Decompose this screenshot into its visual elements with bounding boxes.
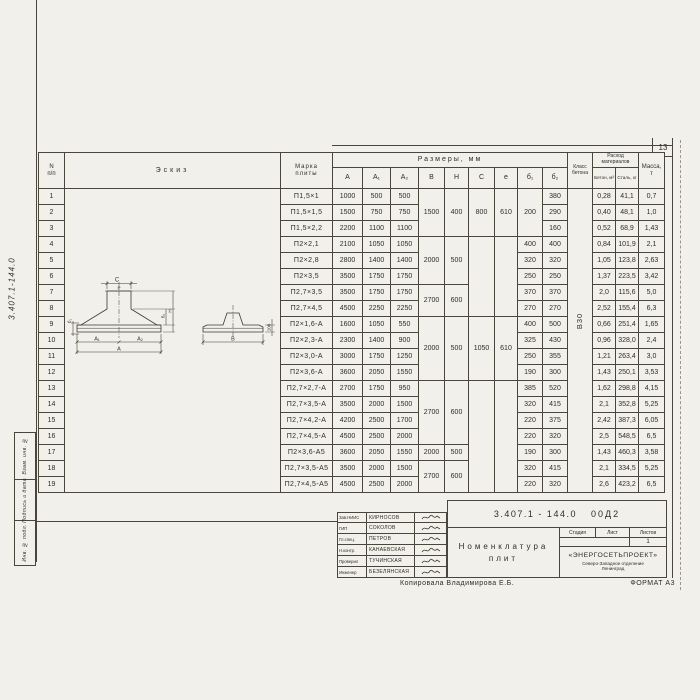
table-cell: 3,0 (639, 349, 665, 365)
mass-header-line2: т (639, 171, 664, 178)
signature-row: Зав.НИИСКИРНОСОВ (337, 512, 447, 523)
table-cell: 298,8 (616, 381, 639, 397)
table-cell: 250 (518, 269, 543, 285)
table-cell: 1400 (363, 253, 391, 269)
col-header-A1: А₁ (363, 168, 391, 189)
table-cell: 190 (518, 445, 543, 461)
table-cell: П2,7×3,5 (281, 285, 333, 301)
table-cell: 1,43 (593, 365, 616, 381)
mark-header-line2: плиты (281, 171, 332, 178)
sketch-cell: С е б₁ б₂ Н А₁ А₂ А В 100 (65, 189, 281, 493)
table-cell: 1400 (363, 333, 391, 349)
concrete-class-value: В30 (576, 313, 584, 329)
dim-label-B: В (231, 337, 235, 343)
table-cell: 4 (39, 237, 65, 253)
table-cell: 1500 (333, 205, 363, 221)
table-cell: 1050 (469, 317, 495, 381)
col-header-A2: А₂ (391, 168, 419, 189)
table-cell: 290 (543, 205, 568, 221)
table-cell: 250 (543, 269, 568, 285)
drawing-title-line2: плит (489, 553, 518, 565)
table-cell: 2,1 (639, 237, 665, 253)
format-note: ФОРМАТ А3 (630, 580, 675, 587)
table-cell: 2000 (391, 429, 419, 445)
table-cell: 2050 (363, 445, 391, 461)
table-cell: 520 (543, 381, 568, 397)
table-cell: 1,43 (639, 221, 665, 237)
table-cell: 19 (39, 477, 65, 493)
dim-label-b2: б₂ (161, 314, 166, 319)
table-cell: 334,5 (616, 461, 639, 477)
table-cell (469, 237, 495, 317)
table-cell: 500 (543, 317, 568, 333)
table-cell: П2×3,5 (281, 269, 333, 285)
table-cell: 1,37 (593, 269, 616, 285)
table-cell: 2500 (363, 477, 391, 493)
table-cell: 2,52 (593, 301, 616, 317)
table-cell: 3000 (333, 349, 363, 365)
table-cell: П1,5×2,2 (281, 221, 333, 237)
table-cell: П2,7×4,5 (281, 301, 333, 317)
table-cell: П2,7×3,5-А5 (281, 461, 333, 477)
table-cell: 2,0 (593, 285, 616, 301)
table-cell: 220 (518, 413, 543, 429)
mass-header-line1: Масса, (639, 164, 664, 171)
table-cell: 1050 (363, 237, 391, 253)
copied-by: Копировала Владимирова Е.Б. (400, 580, 514, 587)
doc-number-cell: 3.407.1 - 144.0 00Д2 (447, 500, 667, 528)
table-cell: 320 (518, 461, 543, 477)
frame-bottom-left-line (36, 521, 338, 522)
stamp-vzam-inv: Взам. инв. № (14, 432, 36, 479)
table-cell: 500 (363, 189, 391, 205)
table-cell: 1000 (333, 189, 363, 205)
signer-role: Проверил (337, 556, 367, 567)
vertical-doc-code: 3.407.1-144.0 (8, 233, 17, 345)
table-cell: 68,9 (616, 221, 639, 237)
table-cell: 2,63 (639, 253, 665, 269)
table-cell: П2×3,0-А (281, 349, 333, 365)
table-cell: 400 (543, 237, 568, 253)
table-cell: П1,5×1,5 (281, 205, 333, 221)
table-cell: 1750 (363, 269, 391, 285)
table-cell: 423,2 (616, 477, 639, 493)
class-header-line2: бетона (568, 171, 592, 177)
table-cell: 0,84 (593, 237, 616, 253)
table-cell: 1,05 (593, 253, 616, 269)
table-cell: 2250 (363, 301, 391, 317)
dim-label-C: С (115, 278, 120, 284)
table-cell: 328,0 (616, 333, 639, 349)
table-cell: 320 (518, 397, 543, 413)
table-cell: 2100 (333, 237, 363, 253)
table-cell: 1100 (391, 221, 419, 237)
signer-name: КАНАЕВСКАЯ (367, 545, 415, 556)
table-cell: 3500 (333, 285, 363, 301)
table-cell: 2700 (333, 381, 363, 397)
table-cell: 10 (39, 333, 65, 349)
table-cell: 4500 (333, 429, 363, 445)
scanned-drawing-sheet: { "page": { "number": "13", "doc_code_ve… (0, 0, 700, 700)
col-header-b2: б₂ (543, 168, 568, 189)
table-cell: 548,5 (616, 429, 639, 445)
signer-role: Гл.спец. (337, 534, 367, 545)
table-cell: 1750 (363, 381, 391, 397)
table-cell: 11 (39, 349, 65, 365)
table-cell: 500 (445, 317, 469, 381)
table-cell: П1,5×1 (281, 189, 333, 205)
table-cell: 600 (445, 381, 469, 445)
table-cell: 13 (39, 381, 65, 397)
table-cell: 1250 (391, 349, 419, 365)
table-cell: 2500 (363, 429, 391, 445)
table-cell: 155,4 (616, 301, 639, 317)
table-cell: 2500 (363, 413, 391, 429)
dim-label-A: А (117, 347, 121, 353)
col-header-B: В (419, 168, 445, 189)
table-cell: 375 (543, 413, 568, 429)
table-cell: 3,53 (639, 365, 665, 381)
table-cell: 800 (469, 189, 495, 237)
signature-row: ГИПСОКОЛОВ (337, 523, 447, 534)
table-cell: 500 (445, 237, 469, 285)
signature-mark (415, 512, 447, 523)
page-number: 13 (659, 143, 668, 152)
table-cell: 0,7 (639, 189, 665, 205)
table-cell: 4500 (333, 477, 363, 493)
table-cell: 251,4 (616, 317, 639, 333)
col-header-C: С (469, 168, 495, 189)
table-cell: 14 (39, 397, 65, 413)
table-cell: 3 (39, 221, 65, 237)
table-cell: 1750 (391, 269, 419, 285)
table-cell: П2×2,1 (281, 237, 333, 253)
table-cell: 9 (39, 317, 65, 333)
table-cell: 300 (543, 445, 568, 461)
consumption-header-line2: материалов (593, 160, 638, 166)
page-edge-shadow (680, 140, 681, 590)
table-cell: 3,42 (639, 269, 665, 285)
table-cell: 1100 (363, 221, 391, 237)
col-header-steel: Сталь, кг (616, 168, 639, 189)
table-cell (495, 237, 518, 317)
signature-row: Гл.спец.ПЕТРОВ (337, 534, 447, 545)
table-cell: 750 (391, 205, 419, 221)
table-cell: 1,62 (593, 381, 616, 397)
table-cell: П2×3,6-А (281, 365, 333, 381)
table-cell: 610 (495, 317, 518, 381)
num-header-top: N (39, 164, 64, 171)
dim-label-A1: А₁ (94, 337, 100, 343)
nomenclature-table: N п/п Эскиз Марка плиты Размеры, мм Клас… (38, 152, 665, 493)
table-cell: П2,7×4,5-А (281, 429, 333, 445)
table-cell: 1500 (419, 189, 445, 237)
title-block: 3.407.1 - 144.0 00Д2 Номенклатура плит С… (337, 500, 667, 578)
stamp-inv-podl: Инв. № подл. (14, 520, 36, 566)
organization-name: «ЭНЕРГОСЕТЬПРОЕКТ» (569, 552, 658, 560)
col-header-A: А (333, 168, 363, 189)
table-cell: 320 (543, 477, 568, 493)
table-cell: 2800 (333, 253, 363, 269)
table-cell: 12 (39, 365, 65, 381)
table-cell: 2000 (363, 461, 391, 477)
signature-grid: Зав.НИИСКИРНОСОВГИПСОКОЛОВГл.спец.ПЕТРОВ… (337, 512, 447, 578)
table-cell: 385 (518, 381, 543, 397)
table-cell: 600 (445, 461, 469, 493)
signer-name: КИРНОСОВ (367, 512, 415, 523)
dimension-lines-left (71, 281, 175, 354)
table-cell (469, 381, 495, 493)
col-header-e: е (495, 168, 518, 189)
table-cell: 123,8 (616, 253, 639, 269)
table-cell: 2700 (419, 285, 445, 317)
table-cell: 3500 (333, 397, 363, 413)
table-cell: 2700 (419, 381, 445, 445)
table-cell: 355 (543, 349, 568, 365)
table-cell: 101,9 (616, 237, 639, 253)
table-cell: П2×3,6-А5 (281, 445, 333, 461)
table-cell: 1400 (391, 253, 419, 269)
table-cell: 500 (391, 189, 419, 205)
sketch-area: С е б₁ б₂ Н А₁ А₂ А В 100 (67, 275, 281, 361)
table-cell: П2×2,3-А (281, 333, 333, 349)
table-cell: 320 (543, 253, 568, 269)
table-cell: 6 (39, 269, 65, 285)
col-header-mark: Марка плиты (281, 153, 333, 189)
dim-label-100: 100 (267, 323, 272, 331)
table-cell: 4500 (333, 301, 363, 317)
signer-name: БЕЗЕЛЯНСКАЯ (367, 567, 415, 578)
table-cell: 160 (543, 221, 568, 237)
doc-number: 3.407.1 - 144.0 (494, 509, 577, 519)
table-cell: 415 (543, 397, 568, 413)
table-cell: 400 (445, 189, 469, 237)
table-cell: 415 (543, 461, 568, 477)
table-cell: 320 (518, 253, 543, 269)
table-cell: 2000 (363, 397, 391, 413)
stamp-podpis-data: Подпись и дата (14, 479, 36, 520)
table-cell: 380 (543, 189, 568, 205)
table-cell: 17 (39, 445, 65, 461)
table-cell: 2200 (333, 221, 363, 237)
table-cell: 41,1 (616, 189, 639, 205)
table-cell: 1 (39, 189, 65, 205)
table-cell: 1750 (363, 349, 391, 365)
table-body: 1 (39, 189, 665, 493)
table-cell: 250,1 (616, 365, 639, 381)
table-cell: 300 (543, 365, 568, 381)
stamp-label: Инв. № подл. (22, 524, 28, 562)
table-cell: 430 (543, 333, 568, 349)
table-cell: 1550 (391, 445, 419, 461)
frame-top-border (332, 145, 672, 146)
table-cell: 2000 (419, 317, 445, 381)
signer-name: ТУЧИНСКАЯ (367, 556, 415, 567)
stamp-label: Подпись и дата (22, 478, 28, 523)
table-cell: 3500 (333, 461, 363, 477)
table-cell: 2000 (419, 237, 445, 285)
table-cell: 550 (391, 317, 419, 333)
table-cell: 600 (445, 285, 469, 317)
table-cell: 0,52 (593, 221, 616, 237)
frame-right-border (672, 138, 673, 578)
table-cell: 6,5 (639, 477, 665, 493)
dim-label-H: Н (168, 309, 173, 312)
signer-role: Н.контр. (337, 545, 367, 556)
table-cell: 2,42 (593, 413, 616, 429)
table-cell: П2,7×3,5-А (281, 397, 333, 413)
signer-role: Инженер (337, 567, 367, 578)
signature-mark (415, 523, 447, 534)
table-cell: 1600 (333, 317, 363, 333)
table-cell: 270 (543, 301, 568, 317)
table-cell: П2,7×4,5-А5 (281, 477, 333, 493)
table-cell: 400 (518, 317, 543, 333)
table-cell: 610 (495, 189, 518, 237)
table-cell: 320 (543, 429, 568, 445)
signature-mark (415, 534, 447, 545)
table-cell: 2,1 (593, 397, 616, 413)
table-cell: 1550 (391, 365, 419, 381)
table-cell: 15 (39, 413, 65, 429)
slab-cross-section-sketch: С е б₁ б₂ Н А₁ А₂ А В 100 (67, 275, 281, 361)
col-header-mass: Масса, т (639, 153, 665, 189)
table-cell: 6,5 (639, 429, 665, 445)
table-cell: 223,5 (616, 269, 639, 285)
organization-city: Ленинград (602, 566, 625, 572)
table-cell: 1,43 (593, 445, 616, 461)
table-cell: П2×2,8 (281, 253, 333, 269)
table-cell: 115,6 (616, 285, 639, 301)
stamp-label: Взам. инв. № (22, 437, 28, 475)
num-header-bottom: п/п (39, 171, 64, 178)
mark-header-line1: Марка (281, 164, 332, 171)
table-cell: 900 (391, 333, 419, 349)
table-cell: П2×1,6-А (281, 317, 333, 333)
table-cell: П2,7×4,2-А (281, 413, 333, 429)
col-header-b1: б₁ (518, 168, 543, 189)
table-cell: 950 (391, 381, 419, 397)
concrete-class-cell: В30 (568, 189, 593, 493)
table-cell: 2000 (391, 477, 419, 493)
table-cell: 1,65 (639, 317, 665, 333)
signature-mark (415, 545, 447, 556)
table-cell: 460,3 (616, 445, 639, 461)
table-cell: 1500 (391, 397, 419, 413)
table-cell: 325 (518, 333, 543, 349)
table-cell: 750 (363, 205, 391, 221)
table-cell: 387,3 (616, 413, 639, 429)
table-cell: 220 (518, 477, 543, 493)
table-cell: 2,4 (639, 333, 665, 349)
table-cell: 2000 (419, 445, 445, 461)
table-cell: 370 (518, 285, 543, 301)
table-cell: 18 (39, 461, 65, 477)
table-cell: 3600 (333, 365, 363, 381)
table-cell: 1750 (391, 285, 419, 301)
table-cell: 1700 (391, 413, 419, 429)
col-header-H: Н (445, 168, 469, 189)
signer-name: ПЕТРОВ (367, 534, 415, 545)
table-cell: 370 (543, 285, 568, 301)
table-row: 1 (39, 189, 665, 205)
table-cell: 2250 (391, 301, 419, 317)
signature-row: ПроверилТУЧИНСКАЯ (337, 556, 447, 567)
table-cell: 5,25 (639, 397, 665, 413)
col-header-consumption: Расход материалов (593, 153, 639, 168)
table-cell: 2050 (363, 365, 391, 381)
table-cell: 0,66 (593, 317, 616, 333)
table-cell: 2300 (333, 333, 363, 349)
table-cell: 0,96 (593, 333, 616, 349)
table-cell: 3600 (333, 445, 363, 461)
table-cell (495, 381, 518, 493)
signer-role: Зав.НИИС (337, 512, 367, 523)
signature-row: ИнженерБЕЗЕЛЯНСКАЯ (337, 567, 447, 578)
table-cell: 200 (518, 189, 543, 237)
col-header-num: N п/п (39, 153, 65, 189)
table-cell: 2,5 (593, 429, 616, 445)
table-cell: 2700 (419, 461, 445, 493)
signature-mark (415, 567, 447, 578)
table-cell: 2 (39, 205, 65, 221)
col-header-dims-group: Размеры, мм (333, 153, 568, 168)
table-cell: 3500 (333, 269, 363, 285)
table-cell: 250 (518, 349, 543, 365)
table-cell: 400 (518, 237, 543, 253)
table-cell: 263,4 (616, 349, 639, 365)
signature-mark (415, 556, 447, 567)
drawing-title-line1: Номенклатура (459, 541, 549, 553)
table-cell: 0,28 (593, 189, 616, 205)
table-cell: 4200 (333, 413, 363, 429)
table-cell: 16 (39, 429, 65, 445)
signer-name: СОКОЛОВ (367, 523, 415, 534)
dim-label-e: е (117, 286, 120, 292)
table-cell: 1050 (363, 317, 391, 333)
table-cell: 6,3 (639, 301, 665, 317)
table-cell: 2,6 (593, 477, 616, 493)
table-cell: 1050 (391, 237, 419, 253)
table-cell: 1,0 (639, 205, 665, 221)
table-cell: 8 (39, 301, 65, 317)
table-cell: 5,0 (639, 285, 665, 301)
frame-left-border (36, 0, 37, 562)
signer-role: ГИП (337, 523, 367, 534)
table-cell: 220 (518, 429, 543, 445)
col-header-concrete: Бетон, м³ (593, 168, 616, 189)
organization-cell: «ЭНЕРГОСЕТЬПРОЕКТ» Северо-Западное отдел… (559, 546, 667, 578)
table-cell: 5 (39, 253, 65, 269)
dim-label-A2: А₂ (137, 337, 143, 343)
drawing-title-cell: Номенклатура плит (447, 527, 560, 578)
table-cell: 352,8 (616, 397, 639, 413)
margin-stamps: Взам. инв. № Подпись и дата Инв. № подл. (14, 432, 36, 566)
table-cell: 7 (39, 285, 65, 301)
table-cell: 270 (518, 301, 543, 317)
table-cell: 2,1 (593, 461, 616, 477)
copy-line: Копировала Владимирова Е.Б. ФОРМАТ А3 (400, 580, 675, 587)
col-header-sketch: Эскиз (65, 153, 281, 189)
table-cell: 1,21 (593, 349, 616, 365)
table-cell: 500 (445, 445, 469, 461)
table-cell: 1750 (363, 285, 391, 301)
table-cell: 6,05 (639, 413, 665, 429)
table-cell: 0,40 (593, 205, 616, 221)
table-cell: 190 (518, 365, 543, 381)
table-cell: 5,25 (639, 461, 665, 477)
table-cell: П2,7×2,7-А (281, 381, 333, 397)
